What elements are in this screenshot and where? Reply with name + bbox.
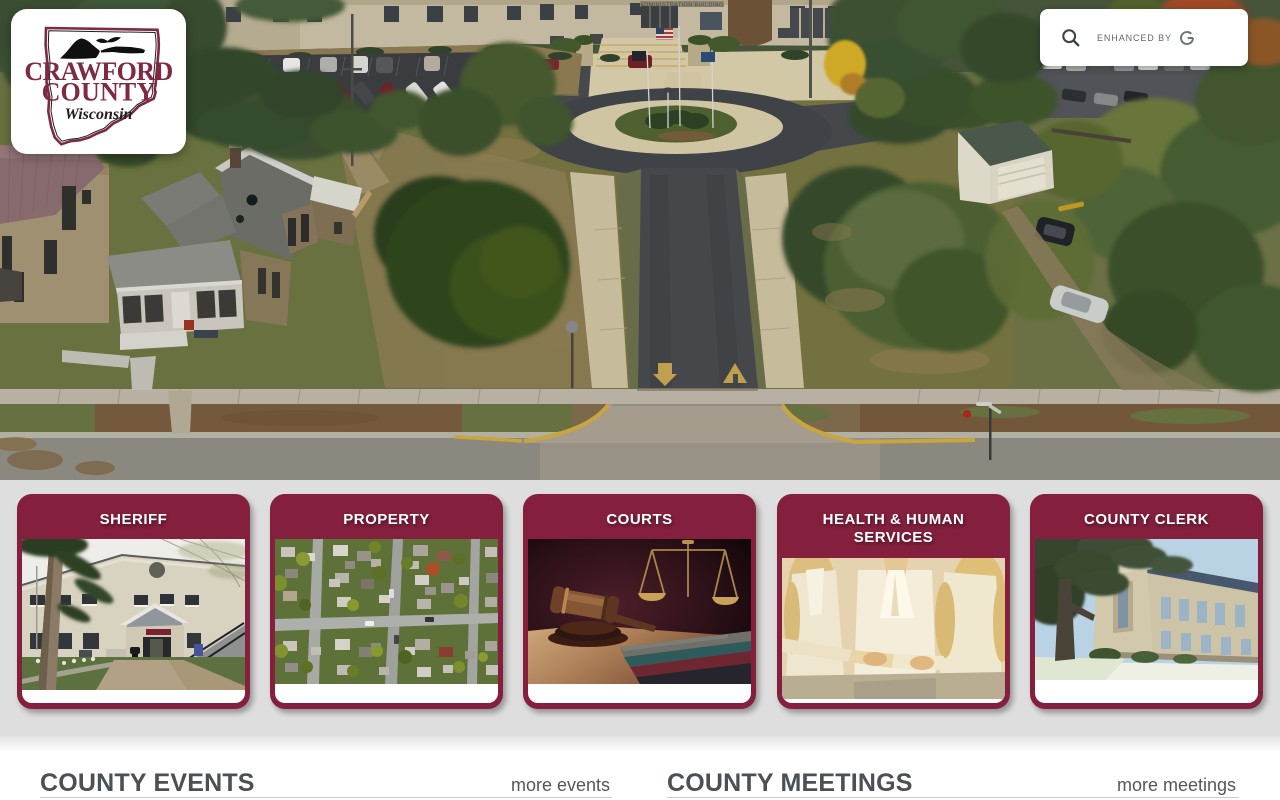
svg-text:Wisconsin: Wisconsin: [65, 106, 133, 123]
svg-text:COUNTY: COUNTY: [42, 78, 156, 107]
